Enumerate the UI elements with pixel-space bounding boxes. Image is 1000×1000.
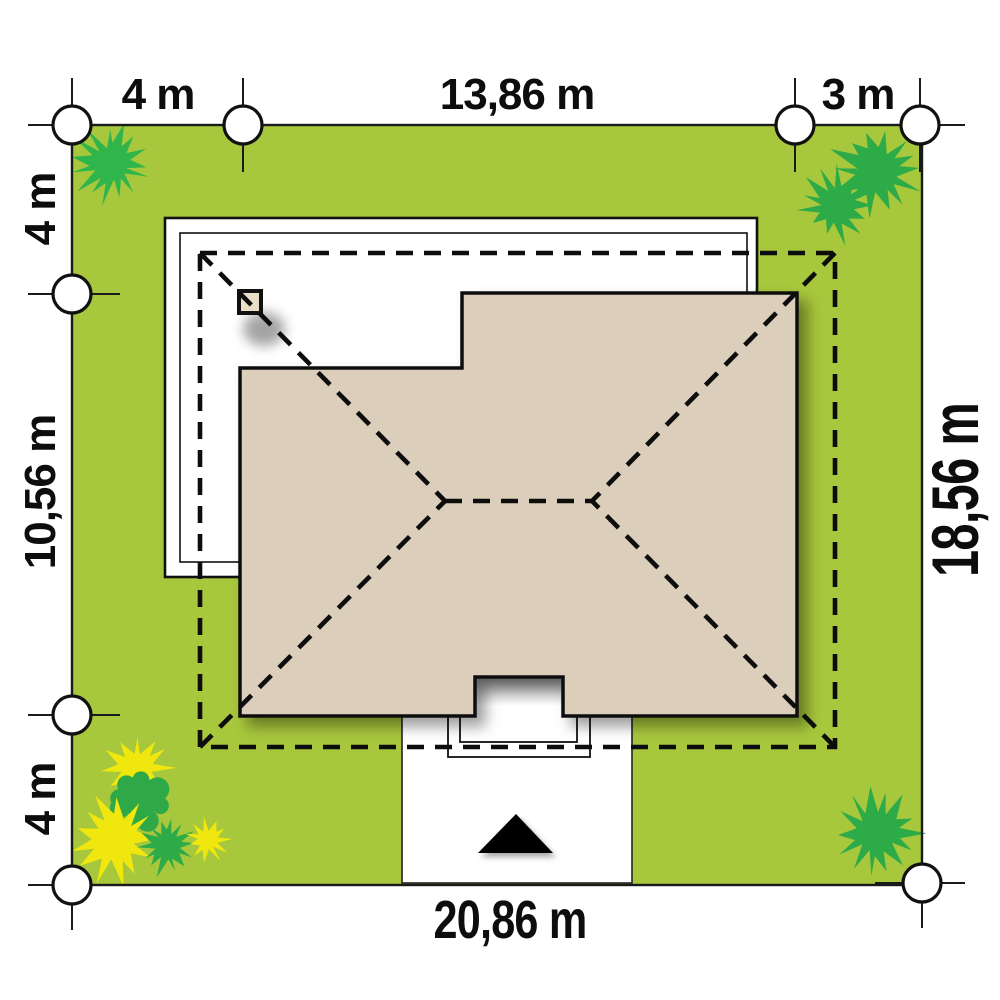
survey-marker: [53, 106, 91, 144]
dimension-label-bottom: 20,86 m: [434, 893, 587, 947]
dimension-label-left-top: 4 m: [19, 173, 63, 246]
survey-marker: [53, 696, 91, 734]
survey-marker: [901, 106, 939, 144]
dimension-label-top-left: 4 m: [122, 73, 195, 117]
entrance-step-inner: [460, 716, 577, 742]
dimension-label-top-center: 13,86 m: [440, 73, 594, 117]
dimension-label-left-bottom: 4 m: [19, 763, 63, 836]
survey-marker: [53, 275, 91, 313]
site-plan-canvas: [0, 0, 1000, 1000]
dimension-label-left-middle: 10,56 m: [19, 415, 63, 569]
survey-marker: [776, 106, 814, 144]
survey-marker: [53, 866, 91, 904]
porch-recess-shadow: [470, 676, 568, 706]
dimension-label-right: 18,56 m: [922, 403, 988, 577]
survey-marker: [903, 864, 941, 902]
site-plan: 4 m 13,86 m 3 m 4 m 10,56 m 4 m 18,56 m …: [0, 0, 1000, 1000]
survey-marker: [224, 106, 262, 144]
dimension-label-top-right: 3 m: [822, 73, 895, 117]
